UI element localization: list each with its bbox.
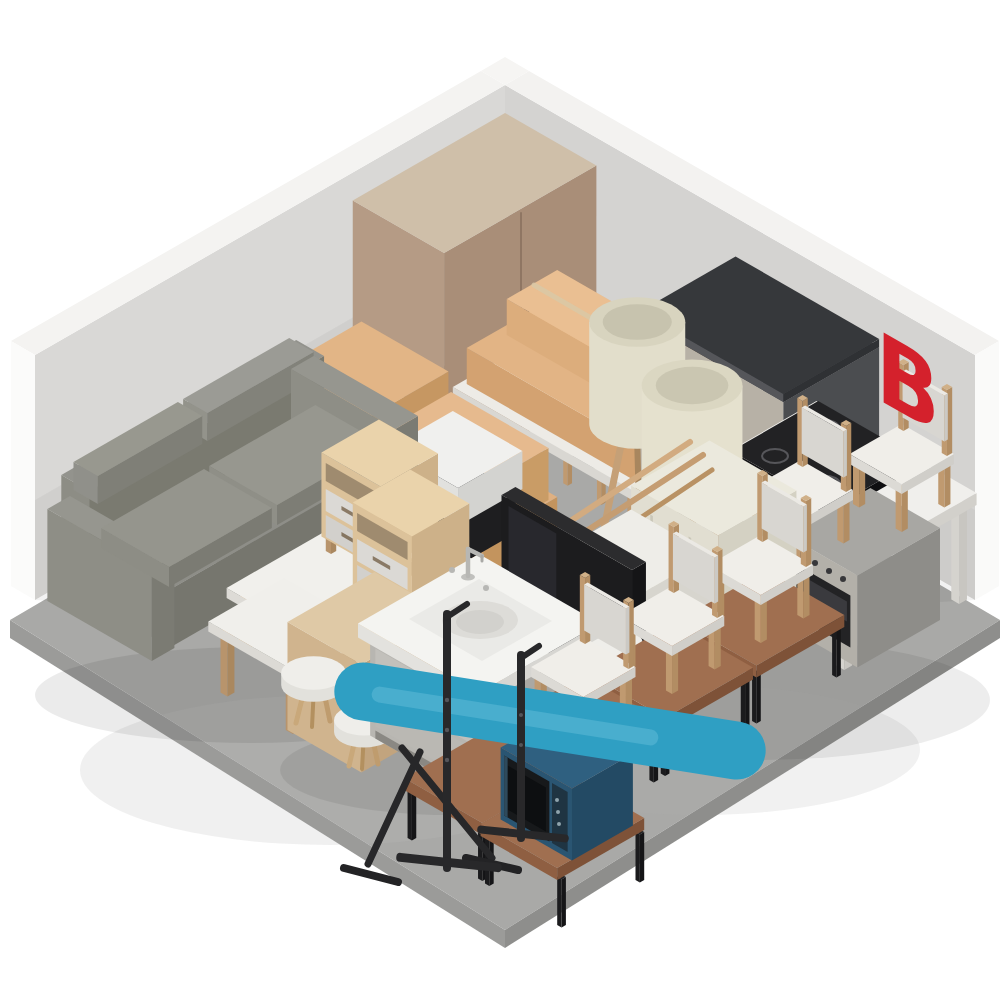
scene-illustration: B: [0, 0, 1000, 1000]
storage-unit-render: B: [0, 0, 1000, 1000]
